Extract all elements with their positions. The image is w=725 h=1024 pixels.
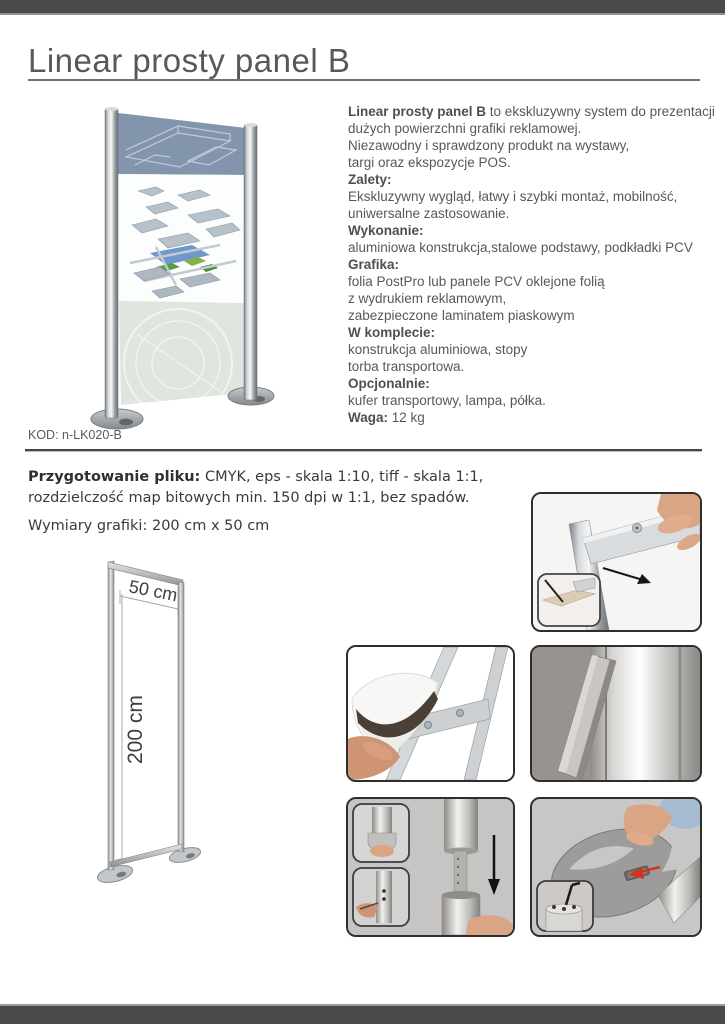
left-foot-hole bbox=[119, 419, 133, 426]
description-line: Grafika: bbox=[348, 256, 720, 273]
description-line: torba transportowa. bbox=[348, 358, 720, 375]
top-bar bbox=[0, 0, 725, 15]
frame-outline-drawing: 50 cm 200 cm bbox=[90, 552, 320, 887]
right-post bbox=[244, 124, 257, 400]
dims-value: 200 cm x 50 cm bbox=[147, 518, 269, 534]
section-divider bbox=[25, 449, 702, 452]
description-line: aluminiowa konstrukcja,stalowe podstawy,… bbox=[348, 239, 720, 256]
inset-allen-key bbox=[537, 881, 593, 931]
description-line: Zalety: bbox=[348, 171, 720, 188]
product-description: Linear prosty panel B to ekskluzywny sys… bbox=[348, 103, 720, 426]
description-line: kufer transportowy, lampa, półka. bbox=[348, 392, 720, 409]
graphic-dimensions-text: Wymiary grafiki: 200 cm x 50 cm bbox=[28, 518, 269, 534]
right-post-cap bbox=[244, 123, 257, 127]
description-line: zabezpieczone laminatem piaskowym bbox=[348, 307, 720, 324]
inset-cap-detail bbox=[353, 804, 409, 862]
dims-label: Wymiary grafiki: bbox=[28, 518, 147, 534]
display-stand-illustration bbox=[60, 95, 340, 435]
photo-profile-detail bbox=[530, 645, 702, 782]
lower-pole-opening bbox=[442, 891, 480, 899]
title-underline bbox=[28, 79, 700, 81]
description-line: Waga: 12 kg bbox=[348, 409, 720, 426]
description-line: folia PostPro lub panele PCV oklejone fo… bbox=[348, 273, 720, 290]
description-line: targi oraz ekspozycje POS. bbox=[348, 154, 720, 171]
connector-tube bbox=[454, 851, 467, 895]
description-line: Opcjonalnie: bbox=[348, 375, 720, 392]
photo-base-mounting bbox=[530, 797, 702, 937]
page-title: Linear prosty panel B bbox=[28, 42, 350, 80]
file-prep-line2: rozdzielczość map bitowych min. 150 dpi … bbox=[28, 490, 469, 506]
upper-pole-segment bbox=[444, 799, 478, 851]
left-post bbox=[105, 108, 118, 418]
diagram-right-post bbox=[178, 582, 184, 852]
product-sheet-page: Linear prosty panel B bbox=[0, 0, 725, 1024]
description-line: dużych powierzchni grafiki reklamowej. bbox=[348, 120, 720, 137]
photo-pole-connection bbox=[346, 797, 515, 937]
file-prep-label: Przygotowanie pliku: bbox=[28, 469, 200, 485]
file-preparation-text: Przygotowanie pliku: CMYK, eps - skala 1… bbox=[28, 467, 498, 509]
photo-graphic-installation bbox=[346, 645, 515, 782]
corner-detail-inset bbox=[538, 574, 600, 626]
description-line: uniwersalne zastosowanie. bbox=[348, 205, 720, 222]
description-line: Niezawodny i sprawdzony produkt na wysta… bbox=[348, 137, 720, 154]
description-line: Ekskluzywny wygląd, łatwy i szybki monta… bbox=[348, 188, 720, 205]
description-line: z wydrukiem reklamowym, bbox=[348, 290, 720, 307]
screw-center bbox=[636, 527, 639, 530]
inset-screw-detail bbox=[353, 868, 409, 926]
product-code: KOD: n-LK020-B bbox=[28, 428, 122, 442]
footer-bar bbox=[0, 1004, 725, 1024]
height-dimension-label: 200 cm bbox=[124, 695, 147, 764]
description-line: W komplecie: bbox=[348, 324, 720, 341]
description-line: Linear prosty panel B to ekskluzywny sys… bbox=[348, 103, 720, 120]
description-line: Wykonanie: bbox=[348, 222, 720, 239]
photo-crossbar-mounting bbox=[531, 492, 702, 632]
left-post-cap bbox=[105, 107, 118, 111]
product-hero-figure bbox=[60, 95, 340, 440]
description-line: konstrukcja aluminiowa, stopy bbox=[348, 341, 720, 358]
file-prep-value: CMYK, eps - skala 1:10, tiff - skala 1:1… bbox=[200, 469, 483, 485]
dimension-diagram: 50 cm 200 cm bbox=[90, 552, 320, 892]
diagram-left-post bbox=[108, 561, 114, 870]
